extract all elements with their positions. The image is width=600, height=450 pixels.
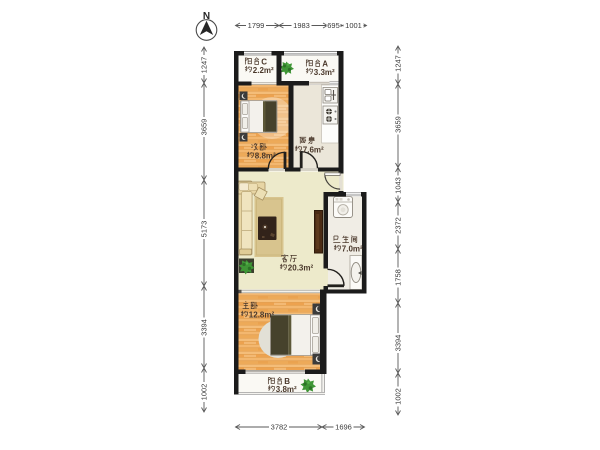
svg-text:5173: 5173 — [200, 221, 209, 238]
svg-text:1983: 1983 — [293, 21, 310, 30]
svg-text:7.6m²: 7.6m² — [303, 145, 324, 154]
svg-text:1799: 1799 — [248, 21, 265, 30]
svg-text:7.0m²: 7.0m² — [342, 245, 363, 254]
svg-text:12.8m²: 12.8m² — [249, 311, 275, 320]
svg-text:1696: 1696 — [335, 423, 352, 432]
svg-text:1001: 1001 — [345, 21, 362, 30]
svg-text:2372: 2372 — [394, 217, 403, 234]
svg-text:20.3m²: 20.3m² — [288, 264, 314, 273]
svg-text:3782: 3782 — [271, 423, 288, 432]
svg-text:1247: 1247 — [200, 57, 209, 74]
svg-text:3659: 3659 — [394, 116, 403, 133]
svg-text:3394: 3394 — [200, 319, 209, 336]
svg-text:1002: 1002 — [394, 388, 403, 405]
svg-text:3.8m²: 3.8m² — [276, 385, 297, 394]
svg-text:8.8m²: 8.8m² — [255, 152, 276, 161]
svg-text:1758: 1758 — [394, 269, 403, 286]
svg-text:N: N — [203, 11, 210, 22]
svg-text:1247: 1247 — [394, 55, 403, 72]
svg-text:1002: 1002 — [200, 384, 209, 401]
svg-text:3.3m²: 3.3m² — [314, 68, 335, 77]
svg-text:695: 695 — [327, 21, 340, 30]
svg-text:3394: 3394 — [394, 335, 403, 352]
svg-text:2.2m²: 2.2m² — [253, 66, 274, 75]
svg-text:3659: 3659 — [200, 119, 209, 136]
svg-text:1043: 1043 — [394, 177, 403, 194]
